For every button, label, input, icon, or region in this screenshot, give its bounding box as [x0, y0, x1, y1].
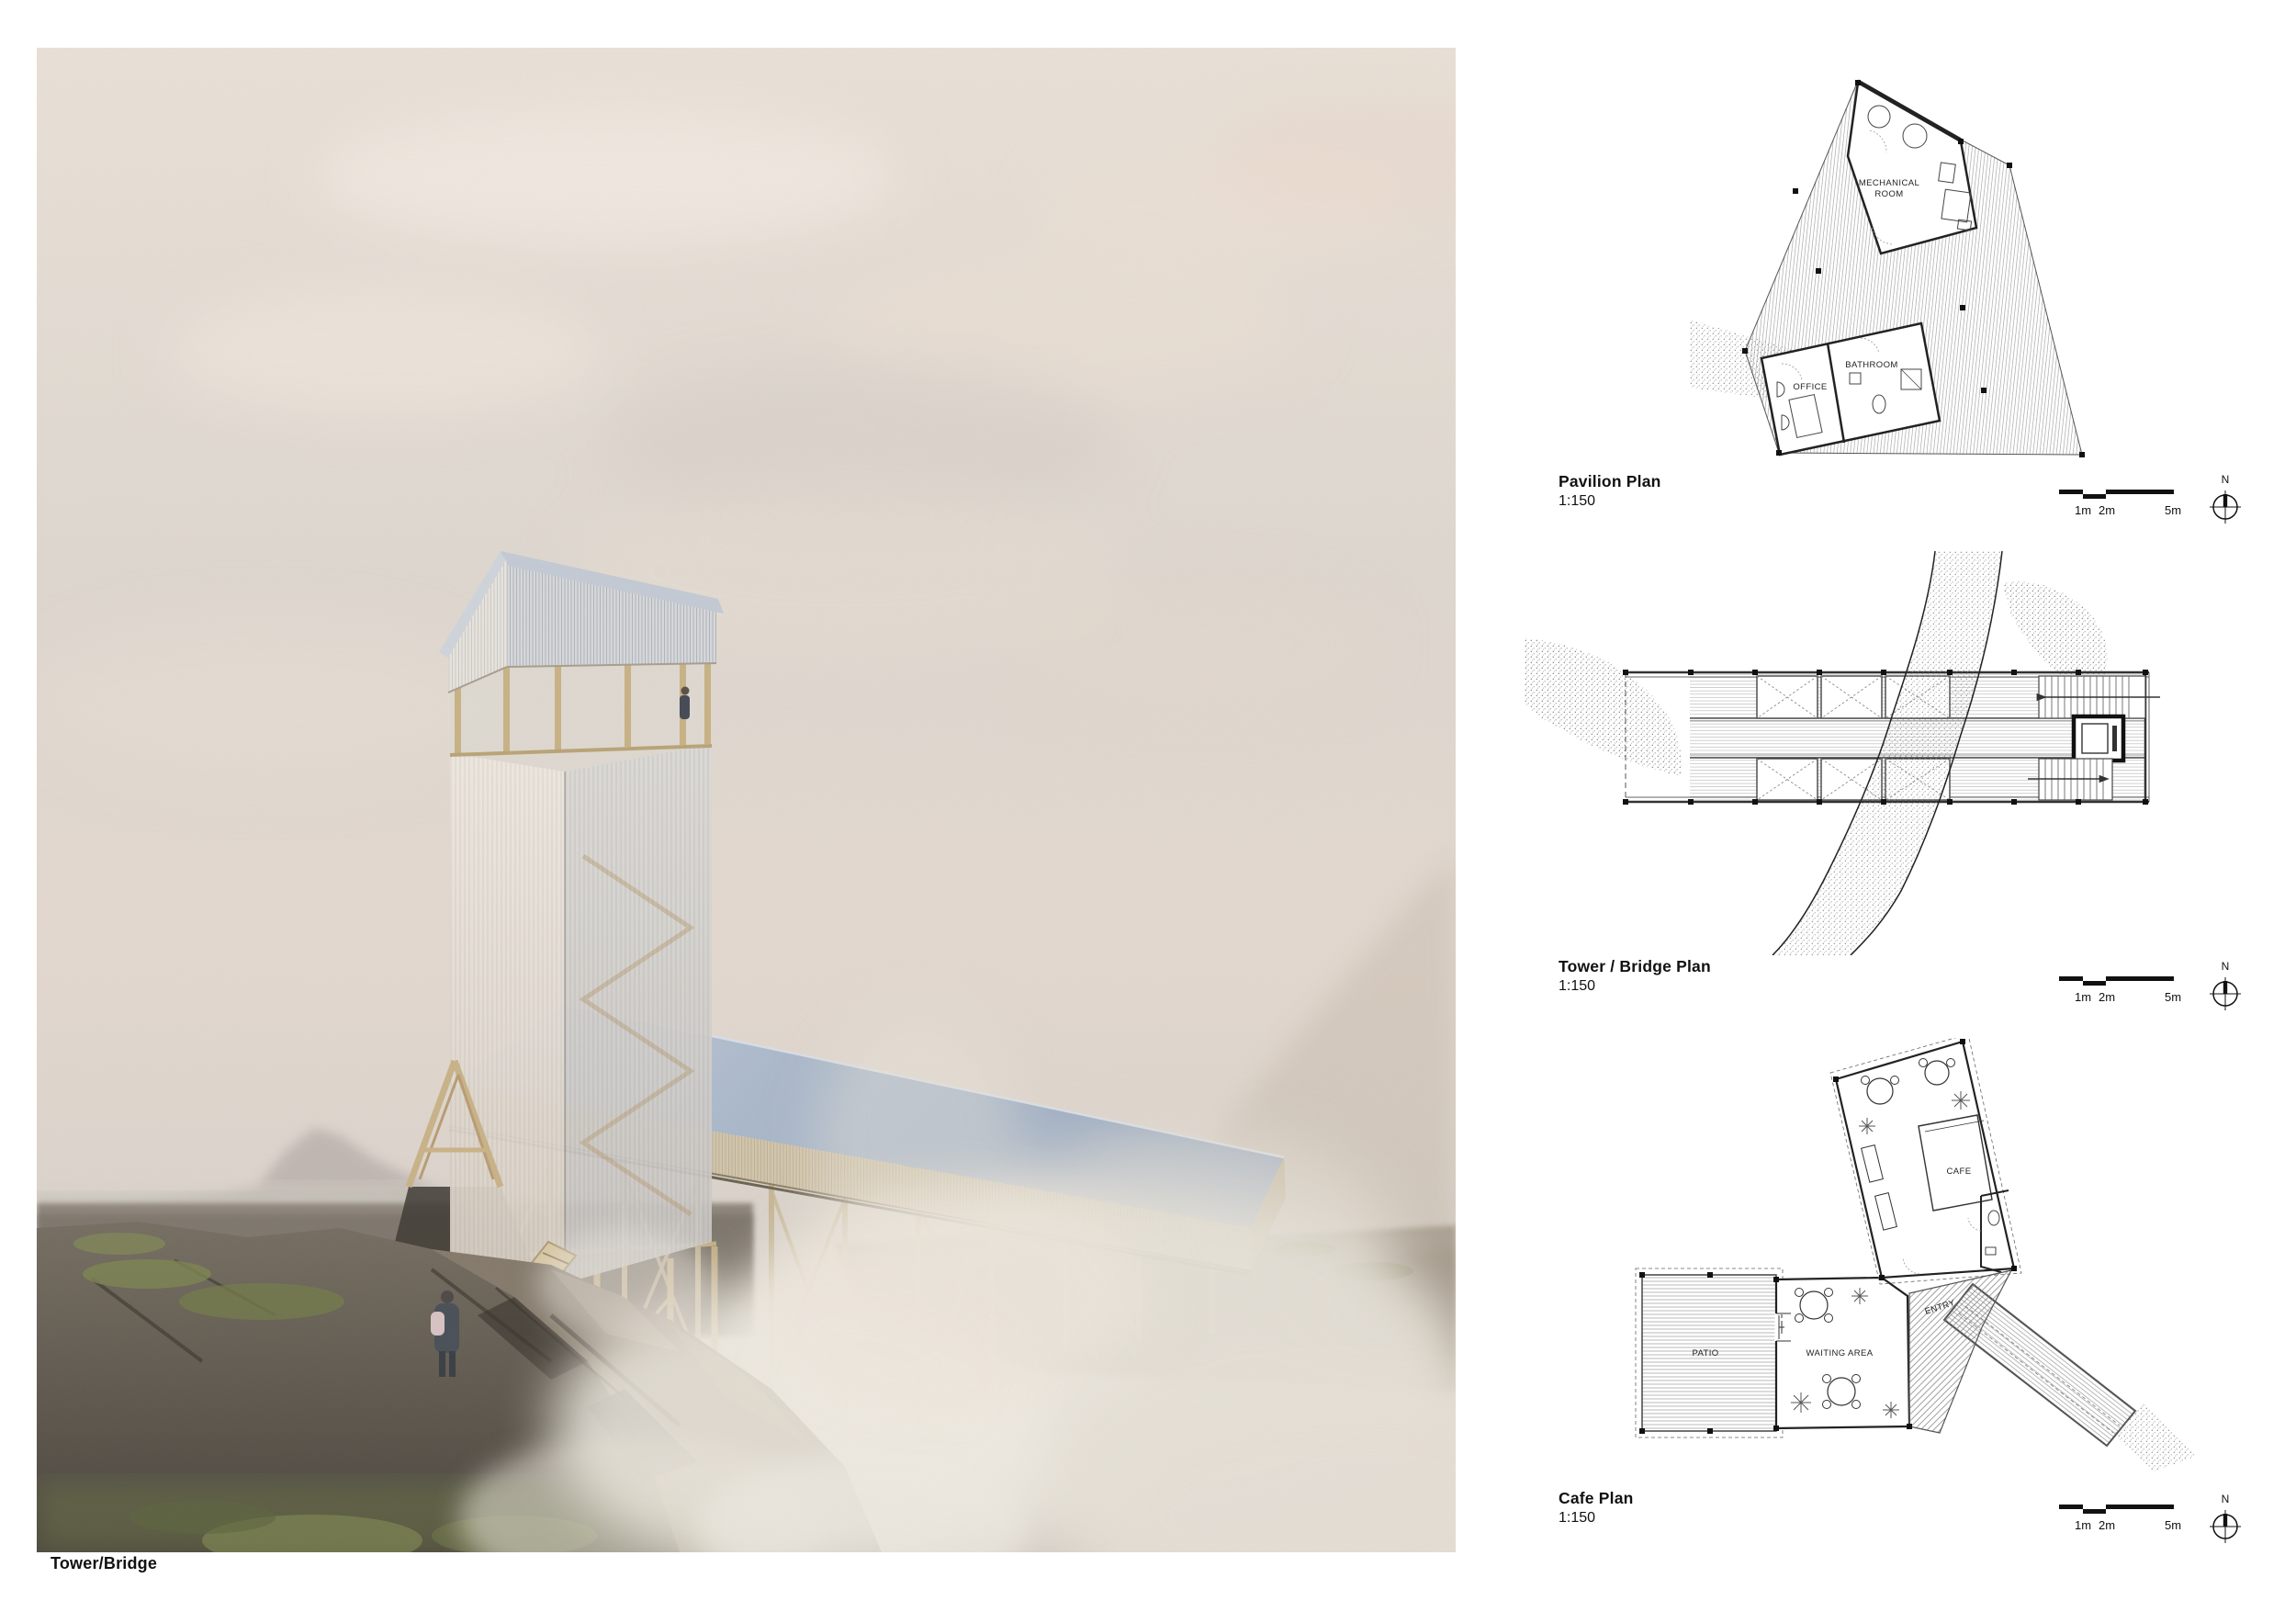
pavilion-caption: Pavilion Plan 1:150	[1559, 471, 1661, 512]
river-bank-left	[1525, 638, 1682, 776]
cafe-caption: Cafe Plan 1:150	[1559, 1488, 1634, 1528]
tower-bridge-caption: Tower / Bridge Plan 1:150	[1559, 956, 1711, 997]
north-needle	[2223, 494, 2227, 507]
label-waiting-area: WAITING AREA	[1806, 1348, 1873, 1358]
tower-bridge-scale: 1:150	[1559, 976, 1711, 997]
north-needle	[2223, 1514, 2227, 1527]
north-arrow-cafe: N	[2202, 1490, 2248, 1547]
scale-bar-cafe: 1m 2m 5m	[2055, 1499, 2184, 1538]
tower-bridge-plan-drawing	[1525, 551, 2259, 955]
north-arrow-pavilion: N	[2202, 470, 2248, 527]
scale-5m: 5m	[2165, 1518, 2181, 1532]
scale-2m: 2m	[2099, 990, 2115, 1004]
cafe-plan-drawing: PATIO WAITING AREA	[1616, 1038, 2204, 1506]
pavilion-title: Pavilion Plan	[1559, 471, 1661, 491]
scale-bar-pavilion: 1m 2m 5m	[2055, 484, 2184, 523]
north-label: N	[2222, 960, 2230, 973]
label-office: OFFICE	[1793, 382, 1827, 392]
tower-bridge-title: Tower / Bridge Plan	[1559, 956, 1711, 976]
scale-bar-tower-bridge: 1m 2m 5m	[2055, 971, 2184, 1009]
north-label: N	[2222, 473, 2230, 486]
cafe-title: Cafe Plan	[1559, 1488, 1634, 1508]
cafe-building: CAFE	[1830, 1038, 2021, 1284]
scale-5m: 5m	[2165, 990, 2181, 1004]
north-label: N	[2222, 1493, 2230, 1505]
north-needle	[2223, 981, 2227, 994]
tower-bridge-render	[37, 48, 1456, 1552]
scale-1m: 1m	[2075, 1518, 2091, 1532]
scale-2m: 2m	[2099, 503, 2115, 517]
scale-1m: 1m	[2075, 503, 2091, 517]
presentation-board: { "board": { "render_caption": "Tower/Br…	[0, 0, 2296, 1623]
bridge-plan-stair-upper	[2039, 676, 2160, 718]
north-arrow-tower-bridge: N	[2202, 957, 2248, 1014]
render-caption: Tower/Bridge	[51, 1554, 157, 1573]
bridge-plan-elevator	[2074, 716, 2123, 761]
label-patio: PATIO	[1692, 1348, 1718, 1358]
cafe-scale: 1:150	[1559, 1508, 1634, 1528]
scale-5m: 5m	[2165, 503, 2181, 517]
label-mechanical-room-2: ROOM	[1874, 189, 1903, 199]
label-mechanical-room-1: MECHANICAL	[1859, 178, 1919, 188]
pavilion-scale: 1:150	[1559, 491, 1661, 512]
scale-1m: 1m	[2075, 990, 2091, 1004]
cafe-waiting-area: WAITING AREA	[1776, 1278, 1909, 1428]
grain-overlay	[37, 48, 1456, 1552]
label-bathroom: BATHROOM	[1845, 360, 1897, 370]
bridge-plan-stair-lower	[2028, 759, 2112, 800]
cafe-patio: PATIO	[1636, 1268, 1783, 1437]
pavilion-plan-drawing: MECHANICAL ROOM OFFICE BATHROOM	[1690, 73, 2131, 473]
label-cafe: CAFE	[1947, 1167, 1972, 1177]
scale-2m: 2m	[2099, 1518, 2115, 1532]
